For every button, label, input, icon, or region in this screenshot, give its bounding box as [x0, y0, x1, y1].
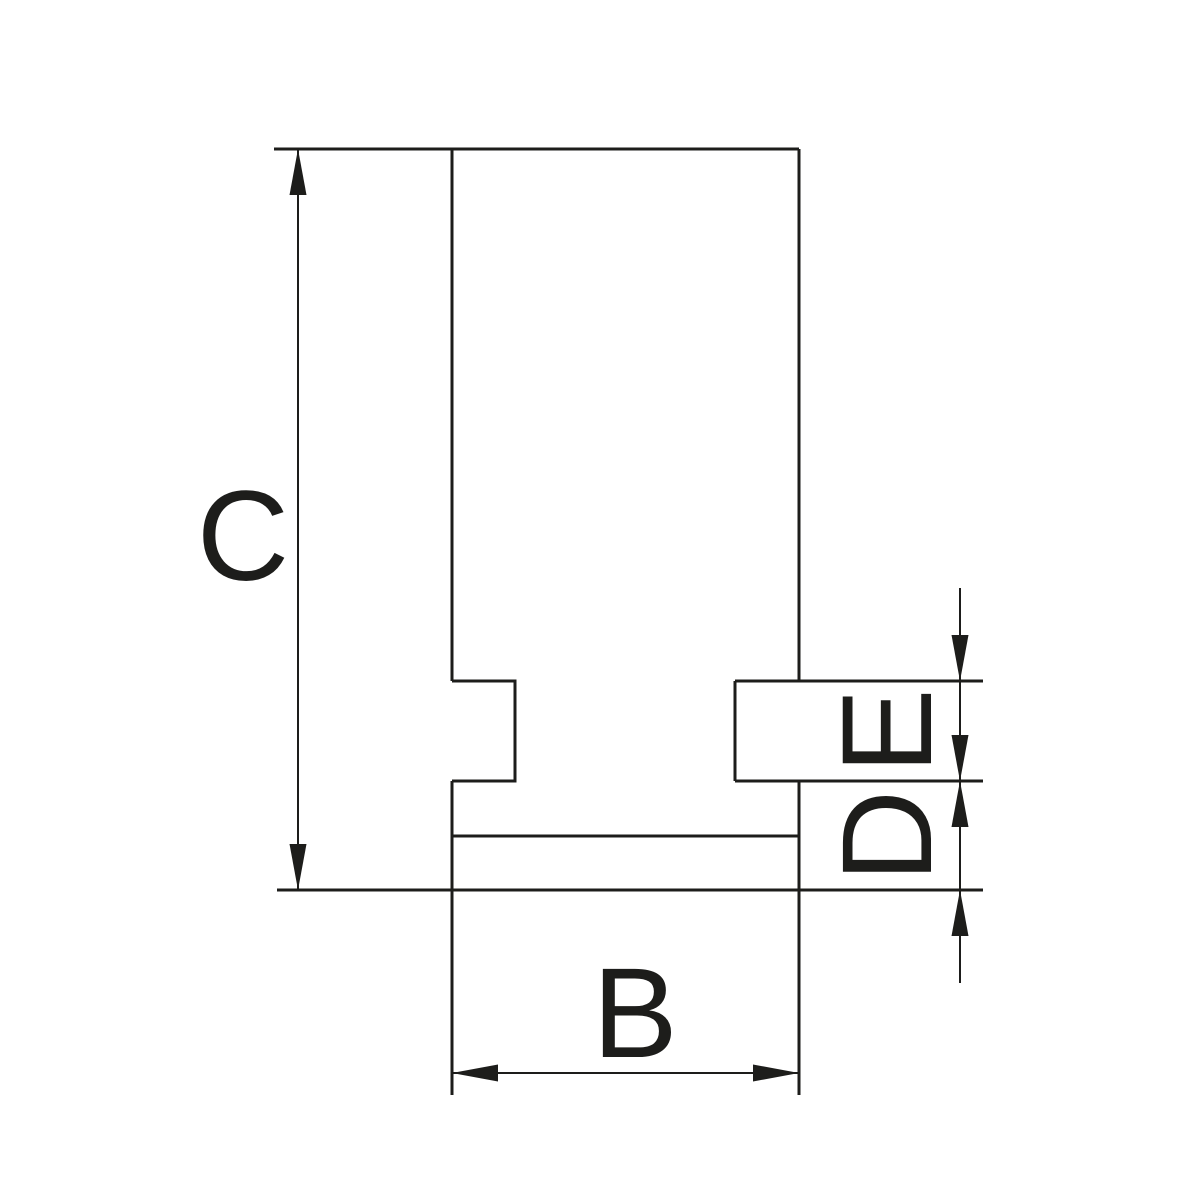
dimension-b-arrow-right: [753, 1065, 799, 1082]
left-notch: [452, 681, 515, 781]
dimension-c-label: C: [197, 465, 289, 608]
dimension-c-arrow-up: [290, 149, 307, 195]
dimension-b-arrow-left: [452, 1065, 498, 1082]
jaw-dimension-drawing: C B E D: [0, 0, 1200, 1200]
dimension-c: [290, 149, 307, 890]
technical-drawing-canvas: C B E D: [0, 0, 1200, 1200]
dimension-e-arrow-top: [952, 635, 969, 681]
dimension-c-arrow-down: [290, 844, 307, 890]
dimension-b-label: B: [592, 942, 677, 1085]
dimension-d-label: D: [816, 790, 959, 882]
dimension-e-label: E: [816, 688, 959, 773]
dimension-de: [952, 588, 969, 983]
dimension-d-arrow-bottom: [952, 890, 969, 936]
